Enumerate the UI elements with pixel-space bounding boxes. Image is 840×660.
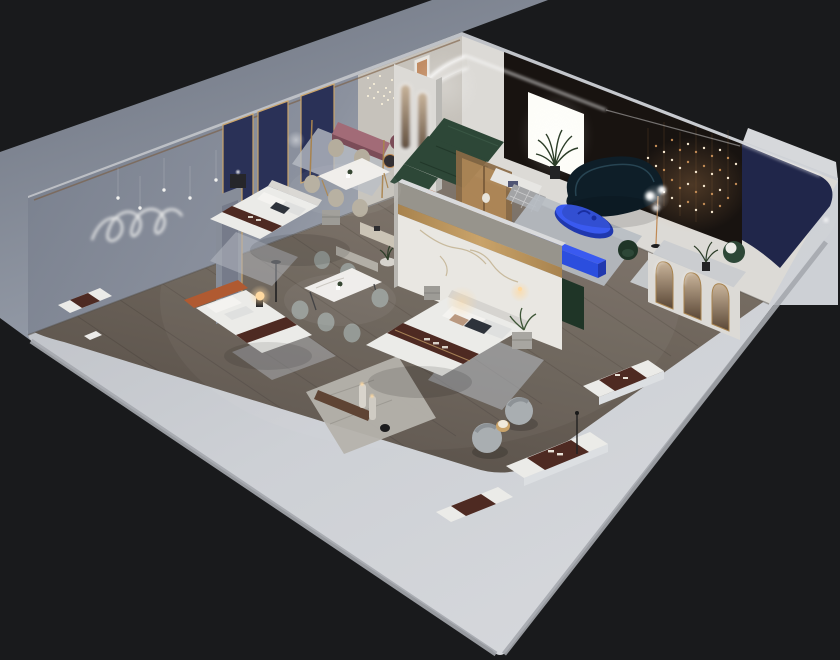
brand-mark <box>248 216 253 218</box>
dining-b-light-pool <box>284 274 396 326</box>
console-decor <box>374 226 380 231</box>
gold-side-table <box>496 420 510 432</box>
sconce-bulb <box>518 287 522 291</box>
render-stage: Isometric 3D cutaway render of a furnish… <box>0 0 840 660</box>
canopy-led-dot <box>824 218 828 222</box>
nightstand-left <box>424 286 440 300</box>
bed-c-spot-glow <box>446 286 478 318</box>
sconce-glow <box>510 282 530 302</box>
dining-a-light-pool <box>289 164 401 216</box>
wall-spot-glow <box>287 131 305 149</box>
glowing-orb-lamp <box>249 285 271 307</box>
black-kettle <box>380 424 390 432</box>
green-armchair <box>723 241 745 263</box>
green-accent-chair <box>618 240 638 260</box>
partition-green-bench <box>562 278 584 330</box>
nightstand-right <box>512 332 532 349</box>
brand-mark <box>256 219 261 221</box>
isometric-interior-render: Isometric 3D cutaway render of a furnish… <box>0 0 840 660</box>
